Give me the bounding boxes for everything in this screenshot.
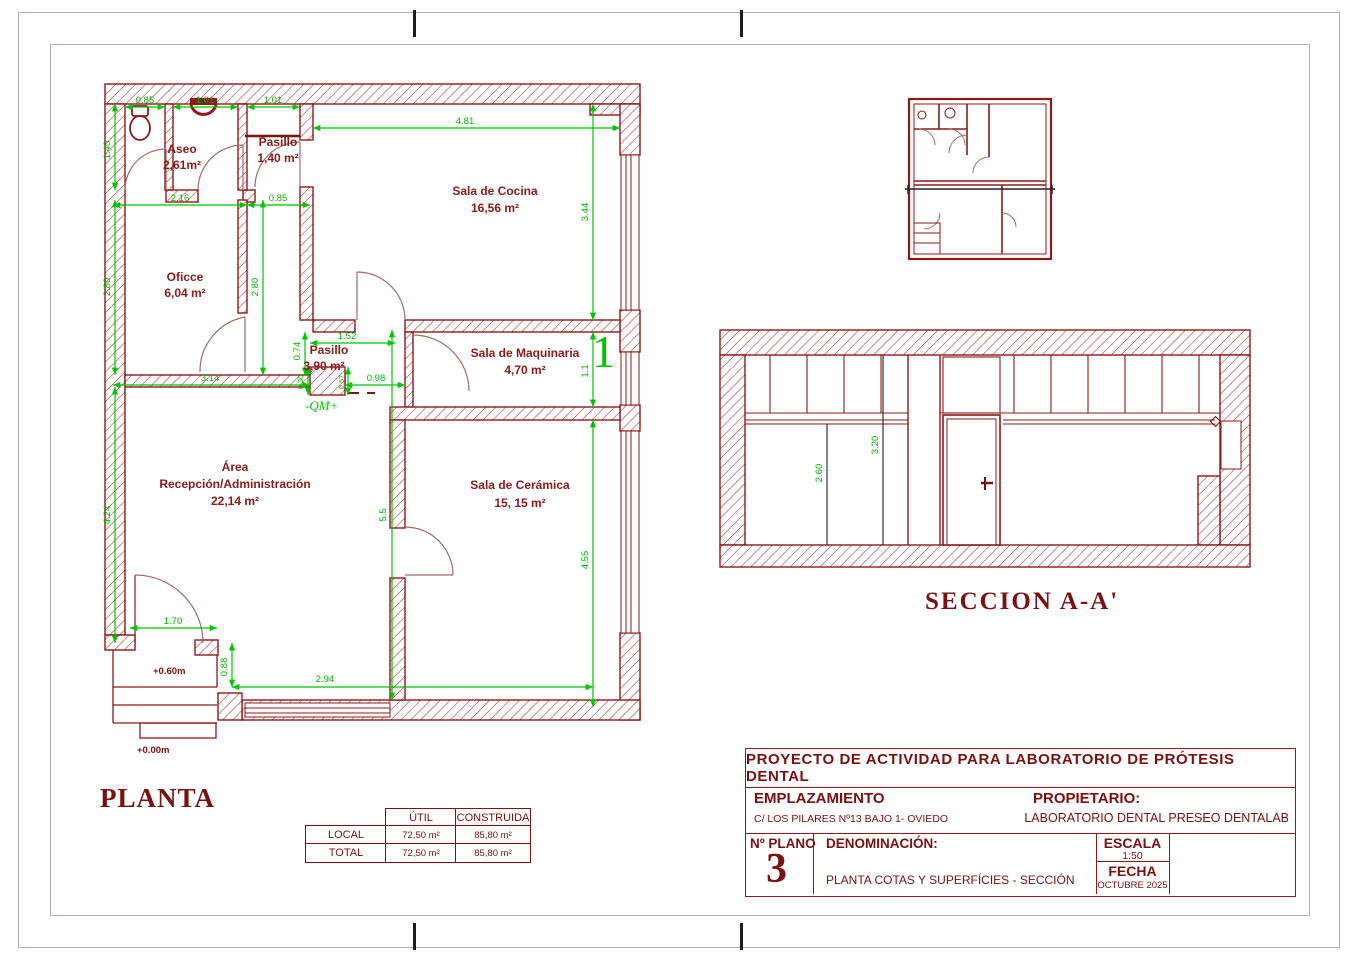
room-name: Recepción/Administración <box>159 477 310 491</box>
room-name: Sala de Maquinaria <box>471 346 580 360</box>
key-plan-section-line <box>905 185 1055 194</box>
dim-label: 2.60 <box>814 464 825 483</box>
level-label: +0.60m <box>153 666 186 677</box>
section-marker: 1 <box>592 326 615 377</box>
dim-label: 4.81 <box>456 116 475 127</box>
denominacion-label: DENOMINACIÓN: <box>826 836 938 851</box>
section-dim-labels: 2.60 3.20 <box>814 436 881 483</box>
dim-label: 0.30 <box>296 375 305 390</box>
dim-label: 1.52 <box>338 331 357 342</box>
room-area: 6,04 m² <box>164 286 205 300</box>
dim-label: 1.40 <box>102 141 113 160</box>
divider <box>1169 833 1170 894</box>
emplazamiento-value: C/ LOS PILARES Nº13 BAJO 1- OVIEDO <box>754 813 948 825</box>
dim-label: 1.70 <box>164 616 183 627</box>
fecha-label: FECHA <box>1096 863 1169 879</box>
registration-tick <box>413 923 416 950</box>
fecha-value: OCTUBRE 2025 <box>1096 880 1169 891</box>
drawing-sheet: { "sheet": { "planta_label": "PLANTA", "… <box>0 0 1358 960</box>
dim-label: 4.55 <box>580 551 591 570</box>
propietario-label: PROPIETARIO: <box>1033 790 1140 807</box>
dim-label: 0.74 <box>292 342 303 361</box>
room-name: Oficce <box>167 270 204 284</box>
room-name: Pasillo <box>310 343 349 357</box>
room-area: 4,70 m² <box>504 363 545 377</box>
planta-title: PLANTA <box>100 783 215 814</box>
dim-label: 0.57 <box>337 375 346 390</box>
propietario-value: LABORATORIO DENTAL PRESEO DENTALAB <box>1024 811 1289 825</box>
section-column <box>908 355 940 545</box>
title-block-info-row: Nº PLANO 3 DENOMINACIÓN: PLANTA COTAS Y … <box>746 833 1295 894</box>
room-name: Aseo <box>167 142 196 156</box>
floor-plan: 0.85 1.01 1.01 4.81 2.16 0.85 1.40 2.80 … <box>95 75 665 765</box>
room-area: 2,61m² <box>163 158 201 172</box>
room-name: Área <box>222 459 249 474</box>
room-area: 22,14 m² <box>211 494 259 508</box>
dim-label: 2.16 <box>171 193 190 204</box>
key-plan <box>905 95 1055 270</box>
dim-label: 4.24 <box>102 506 113 525</box>
escala-label: ESCALA <box>1096 835 1169 851</box>
registration-tick <box>740 923 743 950</box>
table-corner-cell <box>305 808 385 825</box>
room-area: 3,90 m² <box>303 359 344 373</box>
dim-label: 2.94 <box>316 674 335 685</box>
section-drawing: 2.60 3.20 <box>715 325 1255 570</box>
table-cell: 85,80 m² <box>455 843 531 863</box>
plan-walls <box>105 84 640 720</box>
table-cell: 72,50 m² <box>385 825 457 845</box>
title-block: PROYECTO DE ACTIVIDAD PARA LABORATORIO D… <box>745 748 1296 897</box>
table-row-label: TOTAL <box>305 843 387 863</box>
dim-label: 3.14 <box>201 373 220 384</box>
dim-label: 0.85 <box>136 95 155 106</box>
level-label: +0.00m <box>137 745 170 756</box>
toilet-icon <box>130 106 150 140</box>
dim-label: 1.01 <box>264 95 283 106</box>
seccion-title: SECCION A-A' <box>925 588 1119 616</box>
room-name: Sala de Cocina <box>452 184 538 198</box>
section-window-notch <box>1221 421 1241 469</box>
registration-tick <box>740 10 743 37</box>
dim-label: 0.98 <box>367 373 386 384</box>
denominacion-value: PLANTA COTAS Y SUPERFÍCIES - SECCIÓN <box>826 873 1075 887</box>
dim-label: 3.20 <box>870 436 881 455</box>
project-title: PROYECTO DE ACTIVIDAD PARA LABORATORIO D… <box>746 751 1295 785</box>
table-cell: 72,50 m² <box>385 843 457 863</box>
table-row-label: LOCAL <box>305 825 387 845</box>
registration-tick <box>413 10 416 37</box>
level-labels: +0.60m +0.00m <box>137 666 186 756</box>
dim-label: 1.01 <box>196 95 215 106</box>
dim-label: 3.44 <box>580 203 591 222</box>
escala-value: 1:50 <box>1096 850 1169 862</box>
title-block-project-row: PROYECTO DE ACTIVIDAD PARA LABORATORIO D… <box>746 749 1295 788</box>
section-door <box>943 357 1000 545</box>
room-area: 1,40 m² <box>257 151 298 165</box>
dim-label: 1.1 <box>580 364 591 377</box>
plan-doors <box>125 142 469 643</box>
emplazamiento-label: EMPLAZAMIENTO <box>754 790 885 807</box>
dim-label: 2.80 <box>102 278 113 297</box>
dim-label: 0.85 <box>269 193 288 204</box>
dim-label: 2.80 <box>250 278 261 297</box>
entrance-steps <box>113 650 217 738</box>
num-plano-value: 3 <box>766 845 787 893</box>
room-area: 16,56 m² <box>471 201 519 215</box>
room-name: Sala de Cerámica <box>470 478 570 492</box>
dim-label: 0.88 <box>219 658 230 677</box>
table-cell: 85,80 m² <box>455 825 531 845</box>
room-area: 15, 15 m² <box>494 496 545 510</box>
room-name: Pasillo <box>259 135 298 149</box>
title-block-location-row: EMPLAZAMIENTO C/ LOS PILARES Nº13 BAJO 1… <box>746 787 1295 834</box>
dim-label: 5.5 <box>378 508 389 521</box>
qm-note: -QM+ <box>305 398 338 413</box>
